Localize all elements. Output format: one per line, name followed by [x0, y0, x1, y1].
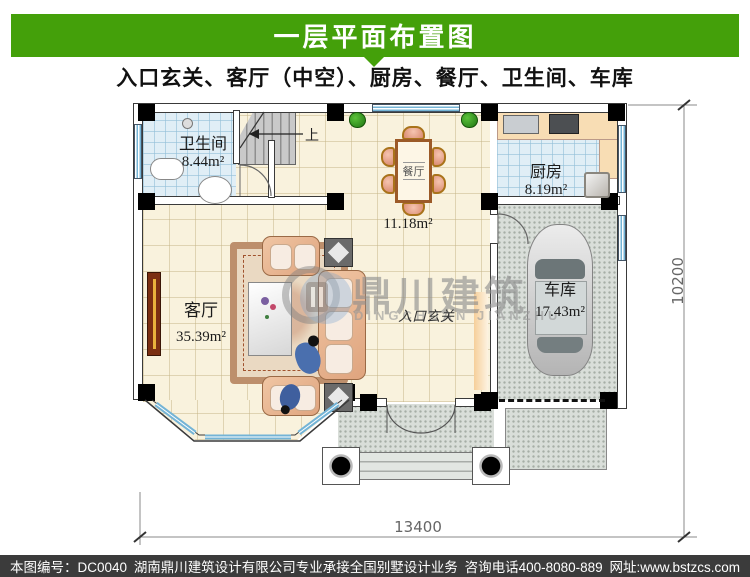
shower-head: [182, 118, 193, 129]
subtitle: 入口玄关、客厅（中空）、厨房、餐厅、卫生间、车库: [0, 62, 750, 92]
garage-label: 车库 17.43m²: [523, 276, 597, 321]
column: [327, 104, 344, 121]
column: [481, 193, 498, 210]
dining-chair: [402, 126, 425, 140]
living-name: 客厅: [156, 296, 246, 321]
kitchen-sink: [503, 115, 539, 134]
plant: [349, 112, 366, 128]
kitchen-window: [618, 125, 626, 193]
bathroom-window: [134, 124, 142, 179]
kitchen-name: 厨房: [505, 158, 587, 182]
kitchen-area: 8.19m²: [505, 182, 587, 199]
porch-column: [472, 447, 510, 485]
dining-window: [372, 104, 460, 112]
watermark-logo-core: [306, 282, 328, 312]
cooktop: [549, 114, 579, 134]
dining-area: 11.18m²: [368, 216, 448, 233]
garage-window: [618, 215, 626, 261]
porch-column: [322, 447, 360, 485]
column: [138, 104, 155, 121]
dining-chair: [381, 174, 395, 194]
entry-label: 入口玄关: [383, 306, 469, 326]
side-table: [324, 383, 353, 412]
dimension-depth: 10200: [669, 251, 687, 311]
refrigerator: [584, 172, 610, 198]
footer-phone: 咨询电话400-8080-889: [465, 556, 603, 576]
dimension-width: 13400: [378, 518, 458, 536]
dining-table-label: 餐厅: [403, 162, 425, 180]
porch-steps: [358, 452, 474, 480]
dining-chair: [402, 202, 425, 216]
footer-bar: 本图编号：DC0040 湖南鼎川建筑设计有限公司专业承接全国别墅设计业务 咨询电…: [0, 555, 750, 577]
kitchen-label: 厨房 8.19m²: [505, 158, 587, 199]
bathroom-area: 8.44m²: [158, 154, 248, 171]
plant: [461, 112, 478, 128]
garage-apron: [505, 408, 607, 470]
living-area: 35.39m²: [156, 329, 246, 346]
sink-basin: [198, 176, 232, 204]
column: [481, 104, 498, 121]
bathroom-label: 卫生间 8.44m²: [158, 130, 248, 171]
footer-company: 湖南鼎川建筑设计有限公司专业承接全国别墅设计业务: [134, 556, 458, 576]
garage-area: 17.43m²: [523, 304, 597, 321]
footer-website: 网址:www.bstzcs.com: [609, 556, 740, 576]
stairs-up-label: 上: [305, 125, 319, 145]
column: [481, 392, 498, 409]
dining-table: 餐厅: [395, 139, 432, 203]
wall-bathroom-bottom: [138, 196, 338, 205]
footer-plan-no: 本图编号：DC0040: [10, 556, 127, 576]
bathroom-name: 卫生间: [158, 130, 248, 154]
column: [360, 394, 377, 411]
column: [608, 104, 625, 121]
column: [327, 193, 344, 210]
column: [138, 384, 155, 401]
garage-name: 车库: [523, 276, 597, 300]
wall-understair: [268, 140, 275, 198]
column: [138, 193, 155, 210]
title-banner: 一层平面布置图: [11, 14, 739, 57]
living-label: 客厅 35.39m²: [156, 296, 246, 346]
porch-floor: [338, 404, 494, 452]
page-title: 一层平面布置图: [273, 17, 476, 54]
floor-plan-page: 一层平面布置图 入口玄关、客厅（中空）、厨房、餐厅、卫生间、车库 上: [0, 0, 750, 577]
dining-chair: [381, 147, 395, 167]
garage-door-dashed: [499, 399, 605, 402]
